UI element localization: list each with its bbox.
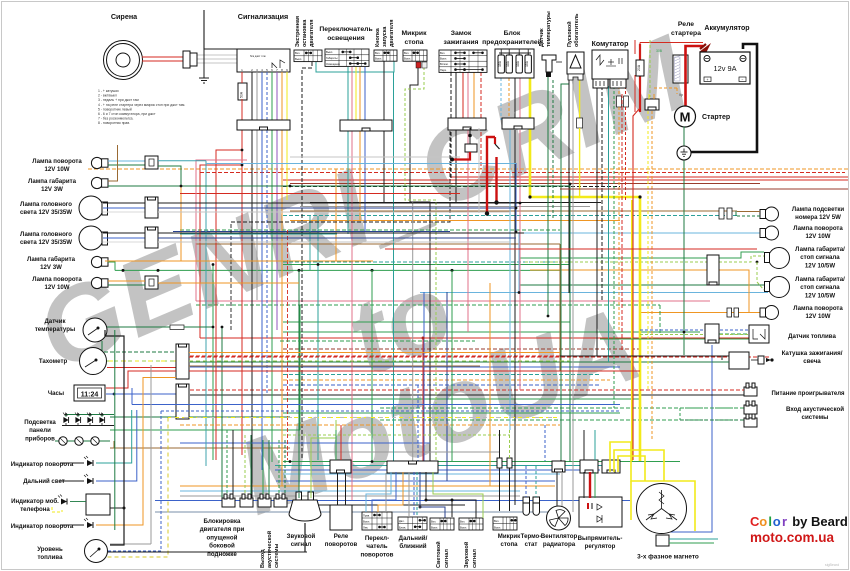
svg-text:Часы: Часы (48, 390, 64, 397)
svg-text:Выкл.: Выкл. (375, 57, 382, 61)
svg-text:акустической: акустической (266, 530, 273, 568)
svg-text:o: o (759, 514, 767, 529)
svg-text:Аккумулятор: Аккумулятор (704, 25, 749, 32)
svg-text:moto.com.ua: moto.com.ua (750, 530, 834, 545)
svg-text:−: − (742, 78, 744, 82)
svg-text:1 - + катушки: 1 - + катушки (98, 89, 119, 93)
svg-text:Кнопка: Кнопка (375, 27, 381, 47)
svg-text:номера 12V 5W: номера 12V 5W (795, 214, 841, 221)
svg-text:12V 10W: 12V 10W (805, 233, 830, 240)
svg-text:Выкл.: Выкл. (326, 50, 333, 54)
svg-text:поворотов: поворотов (325, 541, 358, 548)
svg-text:Стартер: Стартер (702, 114, 730, 121)
svg-text:поворотов: поворотов (361, 551, 394, 558)
svg-text:стартера: стартера (671, 30, 701, 37)
svg-text:Катушка зажигания/: Катушка зажигания/ (782, 350, 843, 357)
svg-text:+: + (707, 78, 709, 82)
svg-text:Датчик: Датчик (539, 28, 545, 47)
svg-text:12v 9A: 12v 9A (713, 64, 736, 73)
svg-text:запуска: запуска (382, 26, 388, 47)
svg-text:двигателя: двигателя (389, 19, 395, 47)
svg-text:Габариты: Габариты (326, 56, 338, 60)
svg-text:12V 10W: 12V 10W (44, 166, 69, 173)
svg-text:освещения: освещения (327, 35, 365, 42)
svg-text:Блок: Блок (504, 30, 521, 37)
svg-text:Сигнализация: Сигнализация (238, 12, 288, 21)
svg-text:Лампа головного: Лампа головного (20, 201, 72, 208)
svg-text:Звуковой: Звуковой (287, 533, 316, 540)
svg-text:Вкл.: Вкл. (431, 519, 436, 523)
svg-text:Выпрямитель-: Выпрямитель- (578, 535, 623, 542)
svg-text:Пусковой: Пусковой (566, 21, 573, 47)
svg-text:12V 10W: 12V 10W (44, 284, 69, 291)
svg-text:Дал.: Дал. (399, 519, 405, 523)
svg-text:sigBeard: sigBeard (825, 563, 839, 567)
svg-text:системы: системы (802, 414, 829, 421)
svg-text:Выкл.: Выкл. (363, 519, 370, 523)
svg-text:температуры: температуры (35, 326, 75, 333)
svg-text:12V 3W: 12V 3W (41, 186, 63, 193)
svg-text:12V 3W: 12V 3W (40, 264, 62, 271)
svg-text:3 - педаль + при джст там: 3 - педаль + при джст там (98, 98, 139, 102)
svg-text:стоп сигнала: стоп сигнала (800, 284, 840, 291)
svg-text:двигателя при: двигателя при (200, 526, 245, 533)
svg-text:15А: 15А (498, 60, 502, 67)
svg-text:4 - + на реле стартера через м: 4 - + на реле стартера через микрик стоп… (98, 103, 185, 107)
svg-text:боковой: боковой (209, 543, 235, 550)
svg-text:Лампа поворота: Лампа поворота (32, 158, 82, 165)
svg-text:5 - поворотник левый: 5 - поворотник левый (98, 107, 132, 111)
svg-text:Кр: Кр (679, 93, 683, 97)
svg-text:света 12V 35/35W: света 12V 35/35W (20, 209, 72, 216)
svg-text:блк джст тлж: блк джст тлж (250, 54, 266, 58)
svg-text:Выход: Выход (260, 549, 266, 568)
svg-text:Прав.: Прав. (363, 513, 370, 517)
svg-text:подножке: подножке (207, 551, 237, 558)
svg-text:Лампа габарита/: Лампа габарита/ (795, 246, 845, 253)
svg-text:Блокировка: Блокировка (204, 518, 241, 525)
svg-text:Лампа габарита: Лампа габарита (28, 178, 77, 185)
svg-text:Вход акустической: Вход акустической (786, 406, 844, 413)
svg-text:Перекл-: Перекл- (365, 535, 389, 542)
svg-text:Лампа поворота: Лампа поворота (793, 305, 843, 312)
svg-text:Вкл.: Вкл. (460, 519, 465, 523)
svg-text:сигнал: сигнал (472, 549, 478, 568)
svg-text:Замок: Замок (451, 30, 472, 37)
svg-text:предохранителей: предохранителей (482, 38, 542, 46)
svg-text:2 - вкл/выкл: 2 - вкл/выкл (98, 94, 117, 98)
svg-text:10А: 10А (506, 60, 510, 67)
svg-text:телефона: телефона (20, 506, 50, 513)
svg-text:Освещение: Освещение (326, 62, 341, 66)
svg-text:Парк.: Парк. (440, 68, 447, 72)
svg-text:Индикатор моб.: Индикатор моб. (11, 498, 59, 505)
svg-text:Дальний/: Дальний/ (399, 535, 428, 542)
svg-text:Сирена: Сирена (111, 12, 138, 21)
svg-text:стоп сигнала: стоп сигнала (800, 254, 840, 261)
svg-text:Питание проигрывателя: Питание проигрывателя (771, 391, 845, 397)
svg-text:r: r (782, 514, 787, 529)
svg-text:Выкл.: Выкл. (440, 57, 447, 61)
svg-text:8 - поворотник прав.: 8 - поворотник прав. (98, 121, 130, 125)
svg-text:сигнал: сигнал (444, 549, 450, 568)
svg-text:Лампа головного: Лампа головного (20, 231, 72, 238)
svg-text:температуры: температуры (546, 11, 552, 47)
svg-text:Вкл.: Вкл. (440, 51, 445, 55)
svg-text:Выкл.: Выкл. (460, 525, 467, 529)
svg-text:Реле: Реле (678, 21, 694, 28)
svg-text:регулятор: регулятор (585, 543, 616, 550)
svg-text:топлива: топлива (38, 554, 64, 561)
svg-text:Лев.: Лев. (363, 525, 369, 529)
svg-text:Индикатор поворота: Индикатор поворота (11, 523, 74, 530)
svg-text:Вкл.: Вкл. (494, 519, 499, 523)
svg-text:Лампа габарита: Лампа габарита (27, 256, 76, 263)
svg-text:Переключатель: Переключатель (319, 26, 372, 33)
svg-text:Индикатор поворота: Индикатор поворота (11, 461, 74, 468)
svg-text:света 12V 35/35W: света 12V 35/35W (20, 239, 72, 246)
svg-text:6 - 6 и 7 стоп коммутатора, пр: 6 - 6 и 7 стоп коммутатора, при джст (98, 112, 156, 116)
svg-text:Датчик топлива: Датчик топлива (788, 333, 836, 340)
svg-text:Микрик: Микрик (498, 533, 521, 540)
svg-text:Микрик: Микрик (402, 30, 428, 37)
svg-text:Термо-: Термо- (521, 533, 542, 540)
svg-text:обогатитель: обогатитель (573, 13, 580, 47)
svg-text:Вентилятор: Вентилятор (541, 533, 578, 540)
svg-text:l: l (768, 514, 772, 529)
svg-text:стопа: стопа (404, 39, 423, 46)
svg-text:Вкл.: Вкл. (404, 51, 409, 55)
svg-text:12V 10/5W: 12V 10/5W (805, 262, 835, 269)
svg-text:Лампа поворота: Лампа поворота (793, 225, 843, 232)
svg-text:Выкл.: Выкл. (295, 57, 302, 61)
svg-text:системы: системы (274, 543, 280, 568)
svg-text:Вспом.: Вспом. (440, 62, 449, 66)
svg-text:сигнал: сигнал (291, 541, 312, 548)
svg-text:Световой: Световой (435, 541, 442, 568)
svg-text:Ближ.: Ближ. (399, 525, 406, 529)
svg-text:Вкл.: Вкл. (295, 51, 300, 55)
svg-text:свеча: свеча (803, 358, 821, 365)
svg-text:Вкл.: Вкл. (375, 51, 380, 55)
svg-text:Комутатор: Комутатор (592, 41, 629, 48)
svg-text:Лампа поворота: Лампа поворота (32, 276, 82, 283)
svg-text:o: o (773, 514, 781, 529)
svg-text:панели: панели (29, 427, 51, 434)
svg-text:ближний: ближний (399, 543, 426, 550)
svg-text:приборов: приборов (25, 435, 55, 442)
svg-text:Датчик: Датчик (44, 318, 66, 325)
svg-text:Выкл.: Выкл. (494, 525, 501, 529)
svg-text:12V 10W: 12V 10W (805, 313, 830, 320)
svg-text:Дальний свет: Дальний свет (23, 478, 65, 485)
svg-text:Уровень: Уровень (37, 546, 63, 553)
svg-text:7 - без росконмельтса.: 7 - без росконмельтса. (98, 117, 134, 121)
svg-text:by Beard: by Beard (792, 514, 848, 529)
svg-text:остановка: остановка (302, 19, 308, 47)
svg-text:двигателя: двигателя (309, 19, 315, 47)
svg-text:Лампа габарита/: Лампа габарита/ (795, 276, 845, 283)
svg-text:50А: 50А (240, 91, 244, 98)
svg-text:Лампа подсветки: Лампа подсветки (792, 206, 845, 213)
svg-text:30В: 30В (656, 49, 663, 53)
svg-text:Тахометр: Тахометр (39, 358, 68, 365)
svg-text:чатель: чатель (366, 543, 387, 550)
svg-text:Выкл.: Выкл. (431, 525, 438, 529)
svg-text:радиатора: радиатора (543, 541, 576, 548)
svg-text:Выкл.: Выкл. (404, 57, 411, 61)
svg-text:стопа: стопа (500, 541, 518, 548)
svg-text:11:24: 11:24 (81, 392, 99, 399)
svg-text:Реле: Реле (334, 533, 349, 540)
svg-text:Подсветка: Подсветка (24, 419, 56, 426)
svg-text:20А: 20А (637, 64, 641, 71)
svg-text:Звуковой: Звуковой (463, 541, 470, 568)
svg-text:12V 10/5W: 12V 10/5W (805, 292, 835, 299)
svg-text:зажигания: зажигания (444, 39, 479, 46)
svg-text:M: M (680, 110, 691, 125)
svg-text:10А: 10А (516, 60, 520, 67)
svg-text:Экстренная: Экстренная (295, 16, 301, 47)
svg-text:3-х фазное магнето: 3-х фазное магнето (637, 554, 699, 561)
svg-text:опущеной: опущеной (207, 534, 238, 541)
svg-text:15А: 15А (525, 60, 529, 67)
svg-text:стат: стат (525, 541, 538, 548)
